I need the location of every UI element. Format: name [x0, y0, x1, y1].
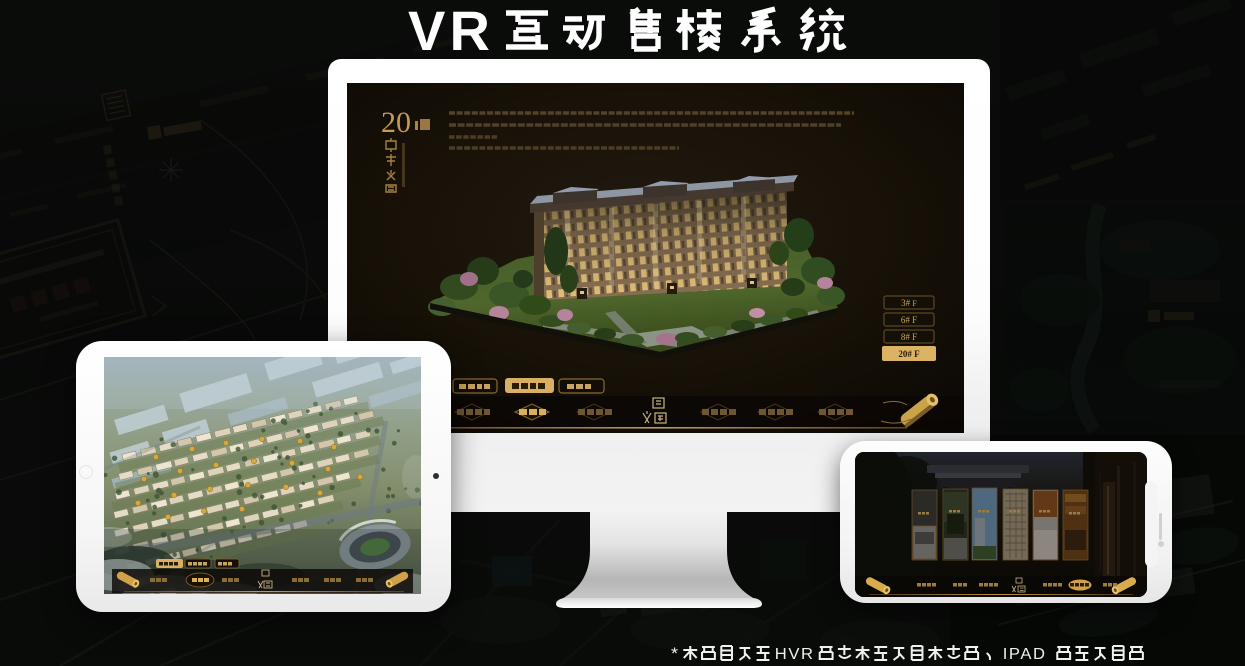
svg-text:IPAD: IPAD — [1003, 645, 1047, 662]
svg-text:*: * — [671, 644, 678, 663]
svg-text:20# F: 20# F — [898, 349, 920, 359]
svg-text:HVR: HVR — [775, 645, 815, 662]
svg-text:6# F: 6# F — [901, 315, 917, 325]
svg-text:20: 20 — [381, 106, 411, 139]
svg-text:8# F: 8# F — [901, 332, 917, 342]
svg-text:3# F: 3# F — [901, 298, 917, 308]
svg-text:VR: VR — [408, 1, 490, 57]
